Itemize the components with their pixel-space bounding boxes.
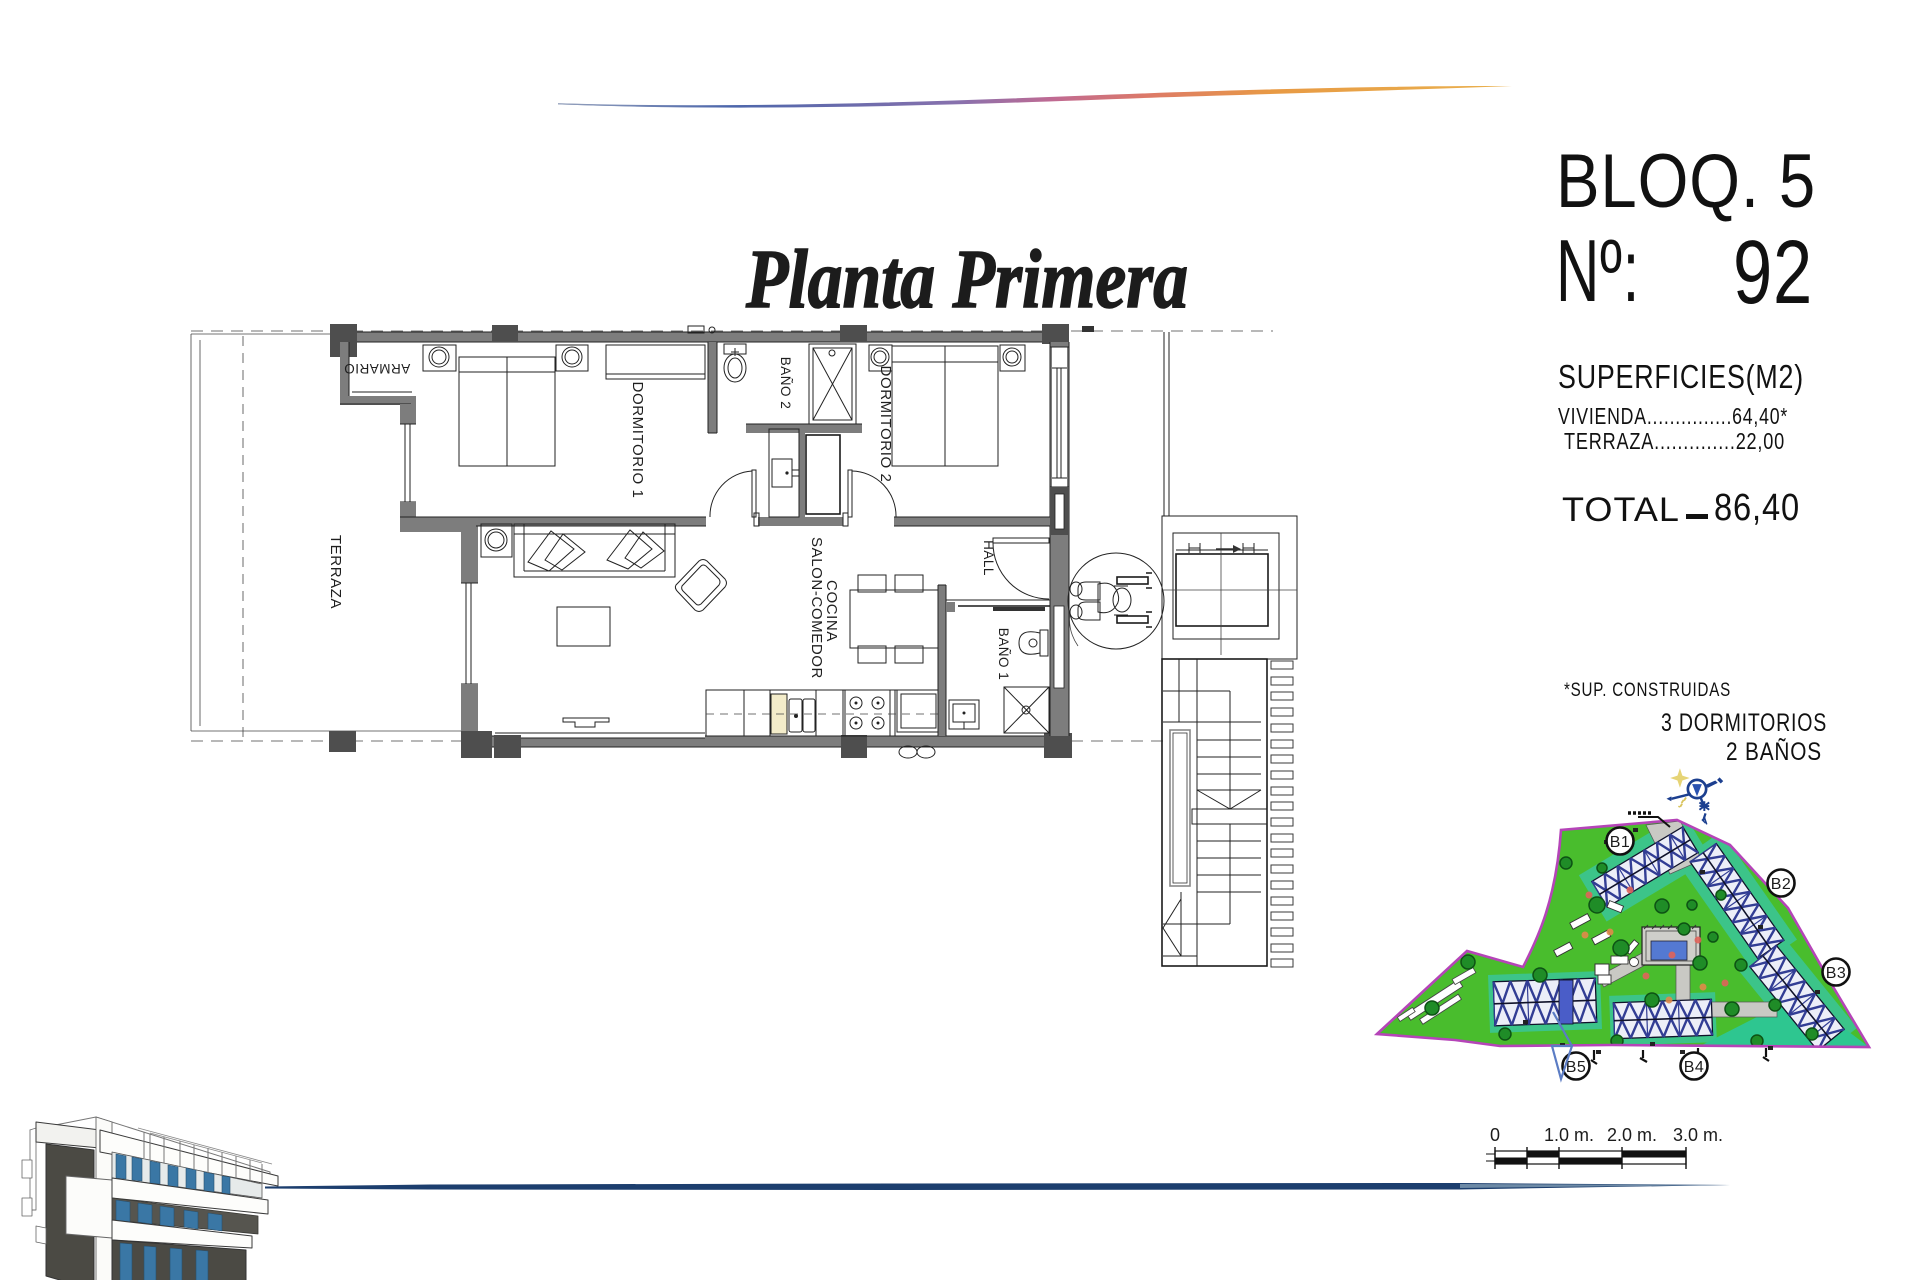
svg-text:*SUP. CONSTRUIDAS: *SUP. CONSTRUIDAS [1564,680,1731,701]
svg-text:3.0 m.: 3.0 m. [1673,1125,1723,1145]
svg-text:HALL: HALL [981,540,996,576]
svg-text:SALON-COMEDOR: SALON-COMEDOR [808,537,825,679]
svg-text:TERRAZA: TERRAZA [327,535,344,609]
svg-text:ARMARIO: ARMARIO [344,361,411,376]
svg-text:BAÑO 1: BAÑO 1 [996,628,1011,681]
svg-text:3 DORMITORIOS: 3 DORMITORIOS [1661,709,1827,737]
svg-text:B4: B4 [1684,1059,1705,1076]
svg-text:TERRAZA..............22,00: TERRAZA..............22,00 [1564,428,1785,454]
svg-text:B3: B3 [1826,965,1847,982]
svg-text:BLOQ. 5: BLOQ. 5 [1556,139,1816,224]
svg-text:B5: B5 [1566,1059,1587,1076]
svg-text:Planta Primera: Planta Primera [745,233,1188,326]
svg-text:2.0 m.: 2.0 m. [1607,1125,1657,1145]
svg-text:VIVIENDA...............64,40*: VIVIENDA...............64,40* [1558,403,1788,429]
svg-text:92: 92 [1733,223,1813,323]
svg-text:1.0 m.: 1.0 m. [1544,1125,1594,1145]
svg-text:BAÑO 2: BAÑO 2 [778,357,793,410]
svg-text:Nº:: Nº: [1556,221,1640,320]
svg-text:2 BAÑOS: 2 BAÑOS [1726,737,1822,766]
svg-text:DORMITORIO 1: DORMITORIO 1 [629,382,646,499]
svg-text:DORMITORIO 2: DORMITORIO 2 [877,366,894,483]
svg-text:SUPERFICIES(M2): SUPERFICIES(M2) [1558,358,1804,395]
svg-text:86,40: 86,40 [1714,487,1800,529]
svg-text:B1: B1 [1610,834,1631,851]
svg-text:0: 0 [1490,1125,1500,1145]
svg-text:COCINA: COCINA [823,580,840,642]
svg-text:B2: B2 [1771,876,1792,893]
svg-text:TOTAL: TOTAL [1562,491,1680,529]
